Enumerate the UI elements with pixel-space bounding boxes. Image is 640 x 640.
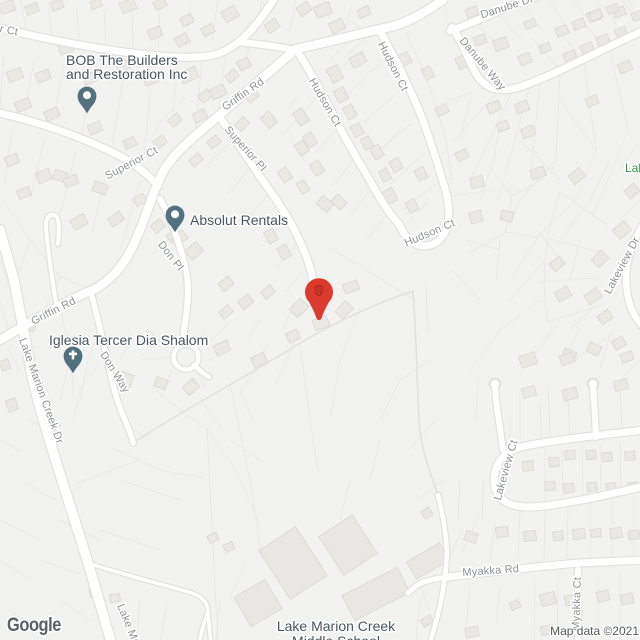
svg-text:and Restoration Inc: and Restoration Inc <box>66 66 187 82</box>
svg-text:Middle School: Middle School <box>292 633 380 640</box>
svg-text:Google: Google <box>7 615 61 636</box>
svg-text:Myakka Ct: Myakka Ct <box>570 577 584 631</box>
svg-text:Lake Marion Creek: Lake Marion Creek <box>277 618 396 634</box>
svg-text:Map data ©2021: Map data ©2021 <box>550 624 639 638</box>
svg-text:Absolut Rentals: Absolut Rentals <box>190 212 288 228</box>
svg-text:Iglesia Tercer Dia Shalom: Iglesia Tercer Dia Shalom <box>49 332 208 348</box>
svg-text:Lak: Lak <box>625 161 640 175</box>
